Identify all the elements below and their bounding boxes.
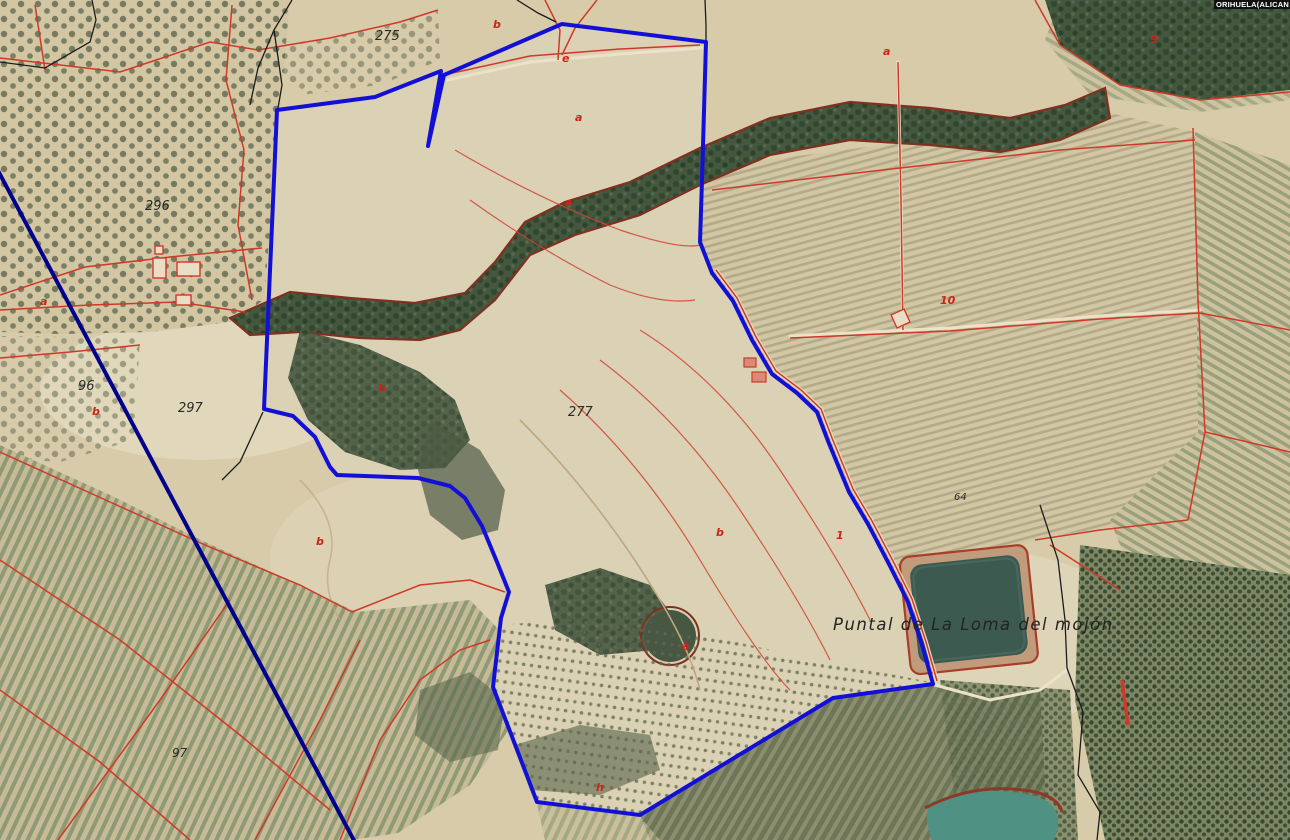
reservoir	[899, 544, 1039, 675]
parcel-number-label: 96	[78, 379, 95, 394]
parcel-number-label: 297	[178, 401, 204, 416]
parcel-number-label: 97	[172, 746, 188, 760]
subparcel-letter-label: a	[565, 196, 572, 209]
subparcel-letter-label: b	[493, 18, 501, 31]
parcel-number-label: 64	[954, 492, 967, 503]
subparcel-letter-label: 1	[836, 529, 844, 542]
place-name-label: Puntal de La Loma del mojón	[833, 615, 1114, 634]
subparcel-letter-label: b	[316, 535, 324, 548]
subparcel-letter-label: h	[596, 781, 604, 794]
municipality-label-box: ORIHUELA(ALICAN	[1214, 0, 1290, 9]
subparcel-letter-label: a	[682, 640, 689, 653]
subparcel-letter-label: b	[378, 382, 386, 395]
subparcel-letter-label: a	[40, 295, 47, 308]
subparcel-letter-label: a	[883, 45, 890, 58]
municipality-label: ORIHUELA(ALICAN	[1216, 0, 1289, 9]
parcel-number-label: 296	[145, 199, 170, 214]
subparcel-letter-label: 9	[1150, 33, 1158, 46]
subparcel-letter-label: b	[92, 405, 100, 418]
subparcel-letter-label: b	[716, 526, 724, 539]
subparcel-letter-label: e	[562, 52, 570, 65]
subparcel-letter-label: a	[575, 111, 582, 124]
map-canvas[interactable]: 275296962972776497 beaabbabhbaa1091 Punt…	[0, 0, 1290, 840]
parcel-number-label: 275	[375, 29, 400, 44]
subparcel-letter-label: 10	[940, 294, 956, 307]
orthophoto-map: 275296962972776497 beaabbabhbaa1091 Punt…	[0, 0, 1290, 840]
parcel-number-label: 277	[568, 405, 594, 420]
